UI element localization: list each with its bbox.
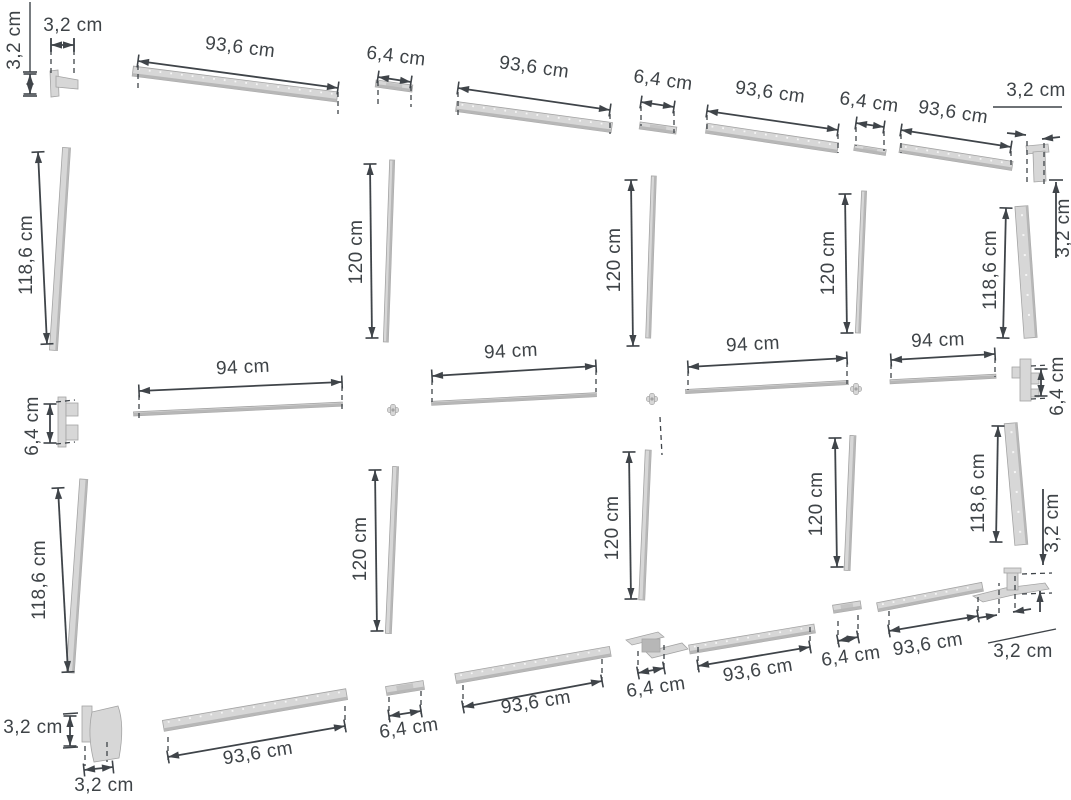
dim-label-top-rail-3-len: 93,6 cm — [734, 77, 807, 108]
part-mid-post-3 — [855, 191, 866, 333]
dim-label-bottom-conn-1-len: 6,4 cm — [378, 714, 440, 743]
part-low-post-3 — [844, 435, 856, 570]
dim-label-low-post-1-len: 120 cm — [350, 517, 371, 582]
part-mid-post-1 — [383, 160, 394, 342]
dim-label-mid-rail-2-len: 94 cm — [484, 340, 539, 364]
dimension-right-rail-1-len: 118,6 cm — [980, 208, 1012, 338]
dimension-mid-rail-4-len: 94 cm — [891, 329, 996, 381]
part-top-conn-3 — [854, 145, 887, 156]
part-left-rail-2 — [66, 479, 88, 673]
dimension-low-post-2-len: 120 cm — [602, 417, 662, 599]
dim-label-bottom-conn-3-len: 6,4 cm — [820, 642, 882, 671]
part-mid-rail-3 — [686, 380, 849, 393]
part-bottom-rail-1 — [162, 689, 347, 731]
part-bottom-rail-4 — [877, 582, 984, 611]
dimension-bottom-conn-3-len: 6,4 cm — [820, 615, 882, 671]
dimension-left-rail-1-len: 118,6 cm — [16, 152, 53, 345]
part-cross-conn-2 — [647, 394, 658, 405]
part-bottom-rail-2 — [455, 646, 611, 683]
dimension-top-left-width: 3,2 cm — [43, 15, 102, 74]
dimension-mid-post-3-len: 120 cm — [818, 194, 853, 333]
dimension-low-post-1-len: 120 cm — [350, 470, 383, 631]
dim-label-left-conn-len: 6,4 cm — [22, 396, 43, 455]
dimension-top-conn-1-len: 6,4 cm — [365, 42, 427, 107]
part-mid-rail-4 — [890, 374, 996, 384]
dim-label-top-right-height: 3,2 cm — [1053, 198, 1071, 257]
dim-label-bottom-right-width: 3,2 cm — [993, 641, 1052, 662]
dimension-top-right-height: 3,2 cm — [1049, 180, 1071, 258]
dim-label-mid-rail-3-len: 94 cm — [726, 333, 781, 357]
dimension-top-left-height: 3,2 cm — [4, 2, 37, 96]
part-bottom-conn-3 — [833, 601, 862, 613]
dim-label-bottom-rail-2-len: 93,6 cm — [500, 687, 573, 719]
part-mid-rail-2 — [432, 393, 597, 406]
part-mid-rail-1 — [134, 402, 343, 416]
dim-label-top-conn-1-len: 6,4 cm — [365, 42, 427, 70]
dimension-mid-post-1-len: 120 cm — [346, 164, 378, 338]
dimension-left-rail-2-len: 118,6 cm — [29, 488, 74, 673]
diagram-canvas: 3,2 cm3,2 cm93,6 cm6,4 cm93,6 cm6,4 cm93… — [0, 0, 1071, 800]
dim-label-bottom-rail-1-len: 93,6 cm — [222, 738, 295, 770]
dim-label-low-post-3-len: 120 cm — [806, 472, 827, 537]
dim-label-top-rail-1-len: 93,6 cm — [204, 33, 276, 62]
part-low-post-1 — [385, 466, 398, 633]
part-corner-bottom-left — [82, 706, 122, 762]
dimension-top-right-width: 3,2 cm — [993, 80, 1066, 186]
dim-label-top-conn-2-len: 6,4 cm — [632, 66, 694, 95]
dim-label-bottom-left-height: 3,2 cm — [3, 717, 62, 738]
dimension-mid-rail-2-len: 94 cm — [432, 340, 597, 402]
part-right-rail-2 — [1004, 423, 1028, 546]
dim-label-bottom-tconn-len: 6,4 cm — [625, 673, 687, 702]
dim-label-left-rail-2-len: 118,6 cm — [29, 540, 50, 620]
dimension-top-conn-3-len: 6,4 cm — [838, 88, 900, 151]
dim-label-left-rail-1-len: 118,6 cm — [16, 215, 37, 295]
dimension-mid-rail-3-len: 94 cm — [688, 333, 848, 390]
dimension-right-conn-len: 6,4 cm — [1031, 356, 1068, 415]
part-cross-conn-1 — [388, 405, 399, 416]
dim-label-top-left-width: 3,2 cm — [43, 15, 102, 36]
dim-label-right-rail-1-len: 118,6 cm — [980, 230, 1001, 310]
assembly-dimension-diagram: 3,2 cm3,2 cm93,6 cm6,4 cm93,6 cm6,4 cm93… — [0, 0, 1071, 800]
dim-label-right-conn-len: 6,4 cm — [1047, 356, 1068, 415]
part-corner-bottom-right — [973, 568, 1049, 602]
part-right-rail-1 — [1015, 206, 1037, 339]
dim-label-bottom-right-height: 3,2 cm — [1042, 493, 1063, 552]
part-top-conn-2 — [639, 122, 677, 134]
dim-label-mid-rail-4-len: 94 cm — [911, 329, 965, 352]
part-low-post-2 — [639, 450, 652, 600]
dim-label-top-left-height: 3,2 cm — [4, 10, 25, 69]
part-left-rail-1 — [49, 147, 70, 350]
dim-label-mid-post-1-len: 120 cm — [346, 220, 367, 285]
dim-label-top-conn-3-len: 6,4 cm — [838, 88, 900, 117]
dim-label-top-right-width: 3,2 cm — [1006, 80, 1065, 101]
dim-label-bottom-left-width: 3,2 cm — [74, 775, 133, 796]
dimension-right-rail-2-len: 118,6 cm — [968, 426, 1004, 542]
dimension-mid-post-2-len: 120 cm — [604, 180, 639, 346]
dim-label-top-rail-2-len: 93,6 cm — [498, 52, 571, 83]
part-left-conn — [58, 397, 78, 447]
dim-label-low-post-2-len: 120 cm — [602, 496, 623, 561]
dim-label-mid-post-2-len: 120 cm — [604, 228, 625, 293]
dim-label-top-rail-4-len: 93,6 cm — [917, 97, 990, 129]
dimension-bottom-right-height: 3,2 cm — [1022, 489, 1063, 612]
dim-label-right-rail-2-len: 118,6 cm — [968, 453, 989, 533]
part-bottom-tconn — [626, 632, 688, 658]
part-top-rail-4 — [899, 144, 1013, 171]
part-corner-top-right — [1026, 144, 1049, 182]
dim-label-mid-rail-1-len: 94 cm — [216, 356, 271, 380]
part-mid-post-2 — [646, 176, 657, 338]
part-corner-top-left — [50, 70, 78, 97]
dimension-bottom-left-height: 3,2 cm — [3, 713, 78, 748]
part-cross-conn-3 — [851, 384, 862, 395]
dim-label-mid-post-3-len: 120 cm — [818, 231, 839, 296]
part-bottom-conn-1 — [386, 681, 425, 696]
dimension-bottom-conn-1-len: 6,4 cm — [378, 691, 440, 743]
dim-label-bottom-rail-4-len: 93,6 cm — [892, 629, 965, 661]
dimension-low-post-3-len: 120 cm — [806, 438, 843, 567]
